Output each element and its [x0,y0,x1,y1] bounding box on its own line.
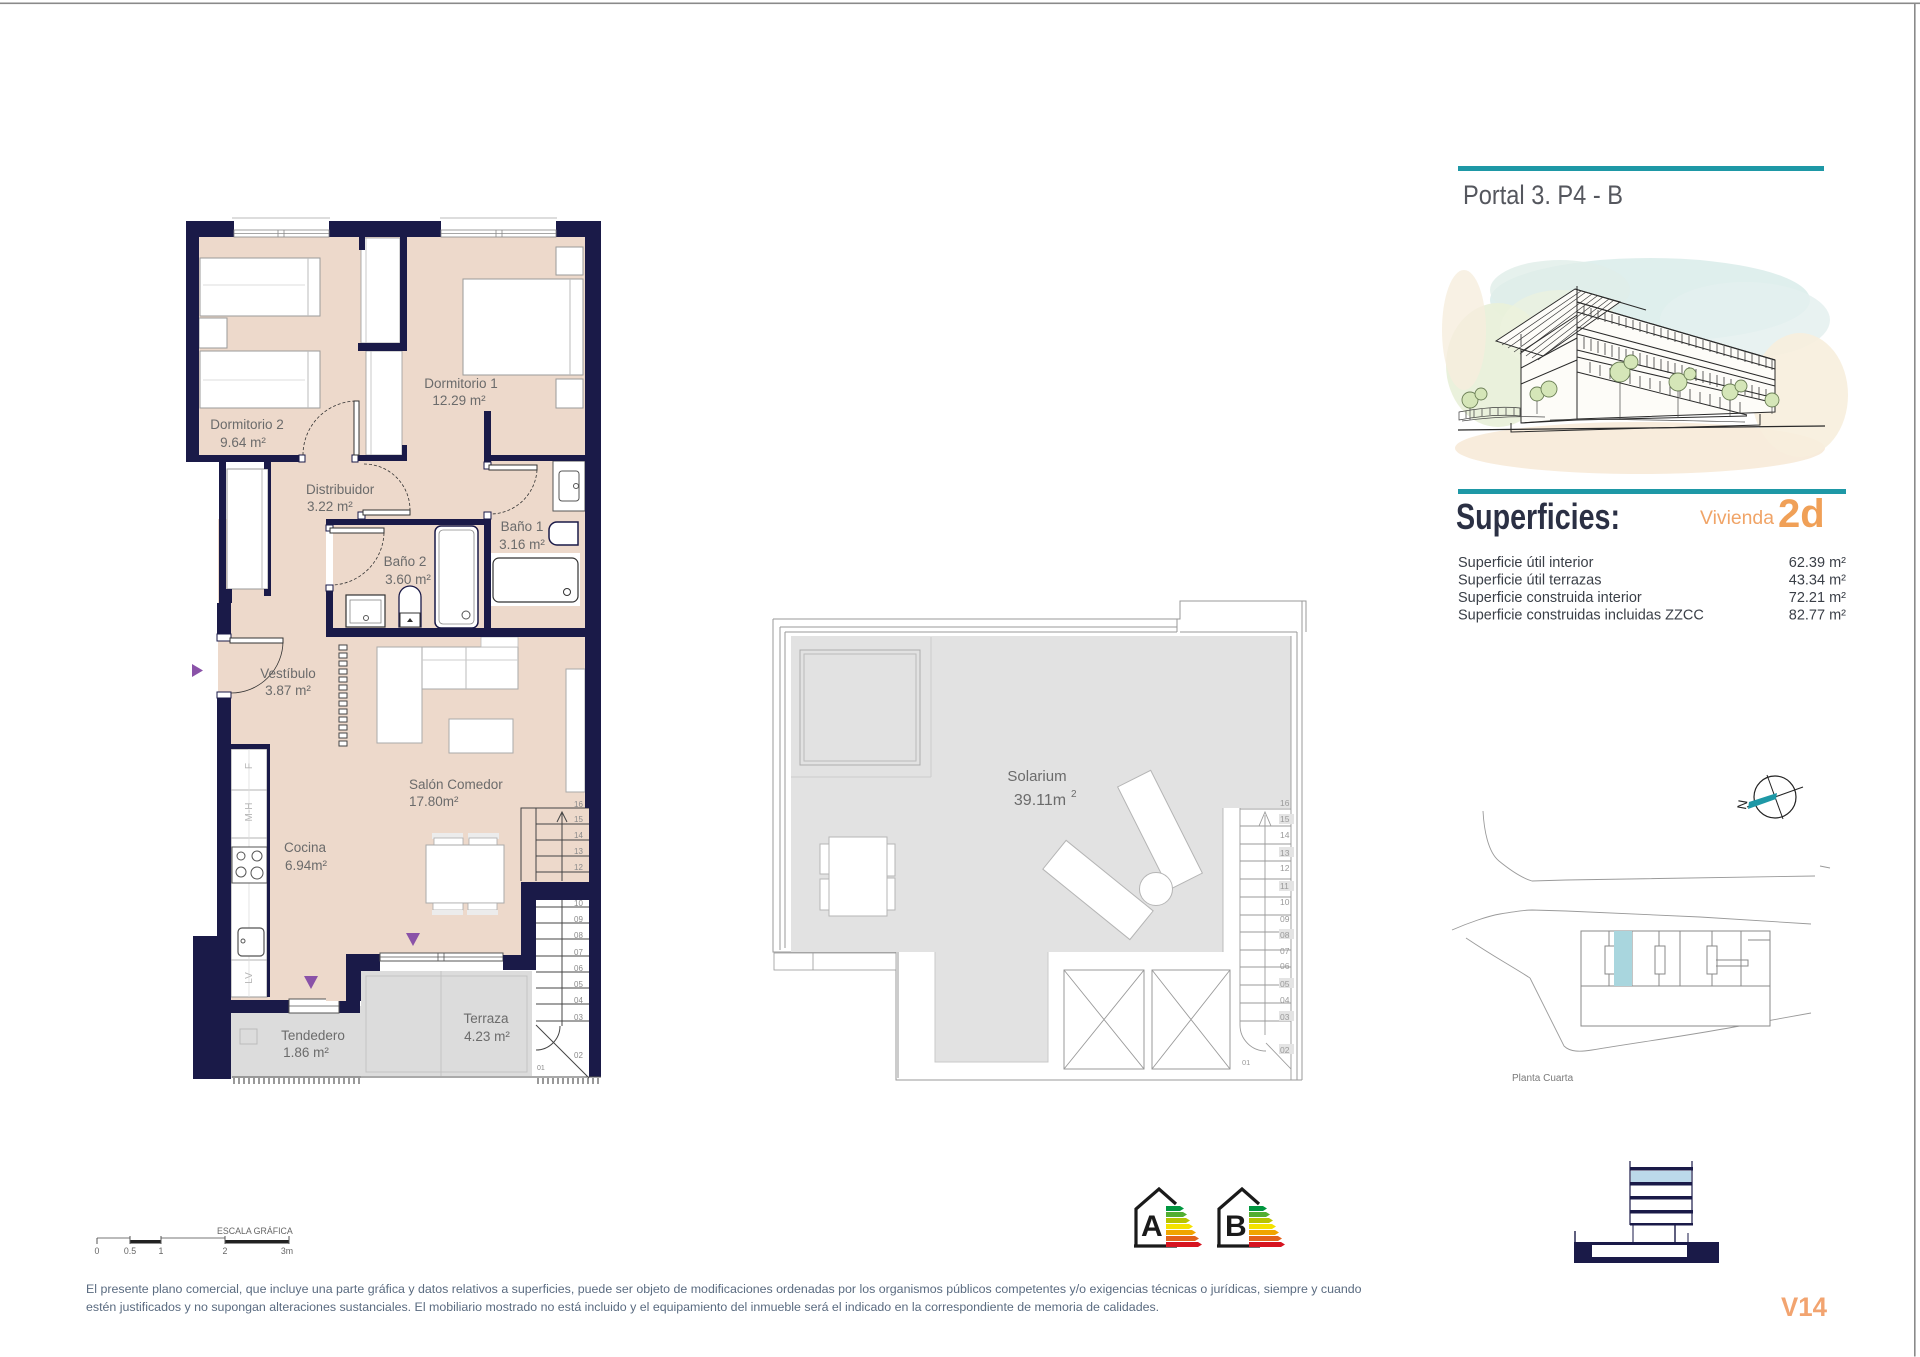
svg-text:M-H: M-H [244,803,255,822]
svg-text:82.77 m²: 82.77 m² [1789,608,1846,624]
svg-text:16: 16 [1280,798,1290,808]
svg-text:Baño 1: Baño 1 [501,519,544,534]
svg-text:13: 13 [574,847,583,856]
svg-text:09: 09 [574,915,583,924]
svg-text:15: 15 [1280,814,1290,824]
svg-text:10: 10 [1280,897,1290,907]
svg-text:09: 09 [1280,914,1290,924]
svg-text:04: 04 [574,996,583,1005]
svg-text:14: 14 [574,831,583,840]
svg-text:F: F [244,763,255,769]
svg-text:Distribuidor: Distribuidor [306,482,375,497]
svg-text:2d: 2d [1778,492,1825,536]
svg-text:12: 12 [1280,863,1290,873]
svg-text:06: 06 [574,964,583,973]
svg-text:02: 02 [574,1051,583,1060]
svg-text:4.23 m²: 4.23 m² [464,1029,510,1044]
svg-text:1: 1 [159,1246,164,1256]
svg-text:Vivienda: Vivienda [1700,508,1774,529]
svg-text:Cocina: Cocina [284,840,327,855]
svg-text:3.22 m²: 3.22 m² [307,499,353,514]
svg-text:Planta Cuarta: Planta Cuarta [1512,1073,1574,1084]
svg-text:03: 03 [574,1013,583,1022]
svg-text:Dormitorio 1: Dormitorio 1 [424,376,498,391]
svg-text:Portal 3. P4 - B: Portal 3. P4 - B [1463,180,1623,210]
svg-text:B: B [1225,1210,1247,1243]
svg-text:08: 08 [1280,930,1290,940]
svg-text:Superficies:: Superficies: [1456,496,1620,537]
svg-text:07: 07 [574,948,583,957]
svg-text:Dormitorio 2: Dormitorio 2 [210,417,284,432]
svg-text:Salón Comedor: Salón Comedor [409,777,503,792]
svg-text:17.80m²: 17.80m² [409,794,459,809]
svg-text:9.64 m²: 9.64 m² [220,435,266,450]
svg-text:05: 05 [1280,979,1290,989]
svg-text:3.60 m²: 3.60 m² [385,572,431,587]
svg-text:3m: 3m [281,1246,293,1256]
svg-text:43.34 m²: 43.34 m² [1789,573,1846,589]
svg-text:07: 07 [1280,946,1290,956]
svg-text:15: 15 [574,815,583,824]
svg-text:12.29 m²: 12.29 m² [432,393,486,408]
svg-text:39.11m: 39.11m [1014,792,1066,809]
svg-text:estén justificados y no supong: estén justificados y no supongan alterac… [86,1300,1159,1314]
svg-text:LV: LV [244,972,255,984]
svg-text:12: 12 [574,863,583,872]
svg-text:Terraza: Terraza [463,1011,509,1026]
svg-text:0: 0 [95,1246,100,1256]
svg-text:05: 05 [574,980,583,989]
svg-text:ESCALA GRÁFICA: ESCALA GRÁFICA [217,1226,293,1236]
svg-text:1.86 m²: 1.86 m² [283,1045,329,1060]
svg-text:08: 08 [574,931,583,940]
svg-text:3.16 m²: 3.16 m² [499,537,545,552]
svg-text:Superficie útil interior: Superficie útil interior [1458,555,1594,571]
svg-text:V14: V14 [1781,1292,1827,1322]
svg-text:6.94m²: 6.94m² [285,858,328,873]
svg-text:04: 04 [1280,995,1290,1005]
svg-text:3.87 m²: 3.87 m² [265,683,311,698]
svg-text:Superficie construidas incluid: Superficie construidas incluidas ZZCC [1458,608,1704,624]
svg-text:A: A [1141,1210,1163,1243]
svg-text:62.39 m²: 62.39 m² [1789,555,1846,571]
svg-text:Tendedero: Tendedero [281,1028,345,1043]
svg-text:01: 01 [537,1065,545,1072]
svg-text:Solarium: Solarium [1007,768,1066,785]
svg-text:72.21 m²: 72.21 m² [1789,590,1846,606]
svg-text:Baño 2: Baño 2 [384,554,427,569]
svg-text:14: 14 [1280,830,1290,840]
svg-text:03: 03 [1280,1012,1290,1022]
svg-text:13: 13 [1280,848,1290,858]
svg-text:06: 06 [1280,961,1290,971]
svg-text:2: 2 [1071,789,1077,800]
svg-text:Vestíbulo: Vestíbulo [260,666,316,681]
svg-text:El presente plano comercial, q: El presente plano comercial, que incluye… [86,1282,1362,1296]
svg-text:0.5: 0.5 [124,1246,136,1256]
svg-text:02: 02 [1280,1045,1290,1055]
svg-text:10: 10 [574,899,583,908]
svg-text:16: 16 [574,800,583,809]
svg-text:Superficie útil terrazas: Superficie útil terrazas [1458,573,1601,589]
svg-text:2: 2 [223,1246,228,1256]
svg-text:Superficie construida interior: Superficie construida interior [1458,590,1642,606]
svg-text:11: 11 [1280,881,1289,891]
svg-text:01: 01 [1242,1058,1250,1067]
